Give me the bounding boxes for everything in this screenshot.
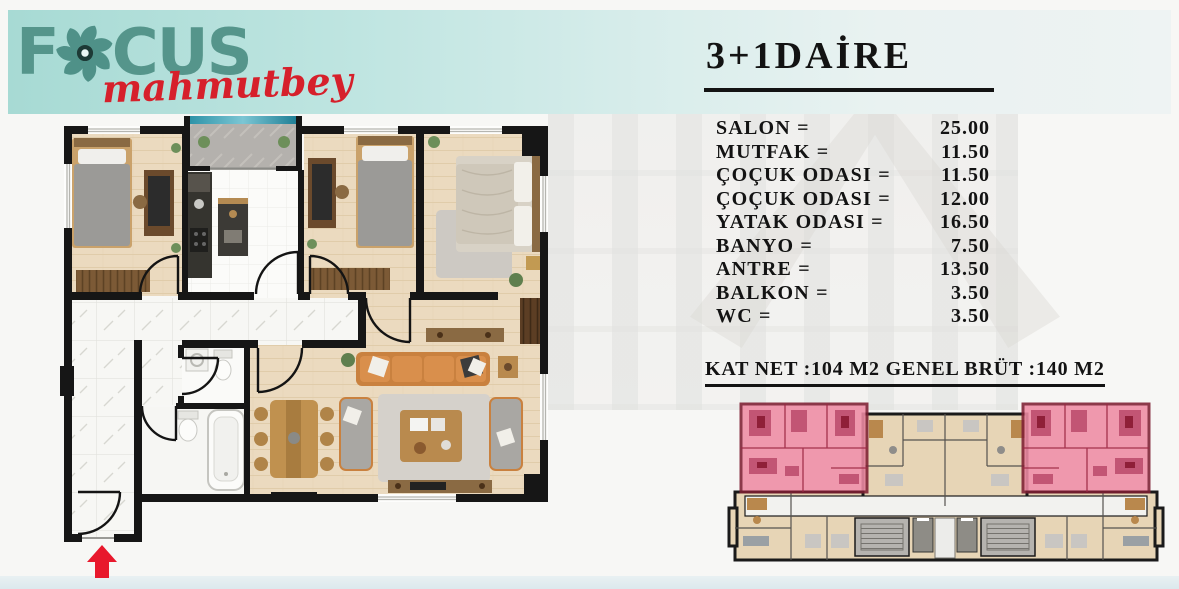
- room-area-value: 16.50: [940, 211, 990, 235]
- room-row: BANYO =7.50: [716, 235, 990, 259]
- logo-text-mahmutbey: mahmutbey: [101, 58, 353, 112]
- apartment-floor-plan: [58, 112, 578, 578]
- title-underline: [704, 88, 994, 92]
- room-row: WC =3.50: [716, 305, 990, 329]
- room-row: ANTRE =13.50: [716, 258, 990, 282]
- room-label: MUTFAK =: [716, 141, 829, 165]
- room-row: MUTFAK =11.50: [716, 141, 990, 165]
- focus-logo: F CUS mahmutbey: [16, 18, 376, 112]
- room-row: SALON =25.00: [716, 117, 990, 141]
- room-row: ÇOÇUK ODASI =12.00: [716, 188, 990, 212]
- room-area-value: 7.50: [951, 235, 990, 259]
- room-label: ÇOÇUK ODASI =: [716, 164, 891, 188]
- room-area-value: 13.50: [940, 258, 990, 282]
- unit-type-title: 3+1DAİRE: [706, 34, 1006, 78]
- room-label: BANYO =: [716, 235, 813, 259]
- flyer-page: F CUS mahmutbey 3+1DAİRE SALON =25.00 MU…: [0, 0, 1179, 589]
- logo-letter-f: F: [16, 21, 58, 85]
- room-label: SALON =: [716, 117, 810, 141]
- room-label: BALKON =: [716, 282, 829, 306]
- overview-highlighted-unit-right: [1023, 404, 1149, 492]
- overview-highlighted-unit-left: [741, 404, 867, 492]
- room-label: ÇOÇUK ODASI =: [716, 188, 891, 212]
- room-row: ÇOÇUK ODASI =11.50: [716, 164, 990, 188]
- room-area-value: 3.50: [951, 282, 990, 306]
- entrance-arrow-icon: [87, 545, 117, 578]
- room-areas-list: SALON =25.00 MUTFAK =11.50 ÇOÇUK ODASI =…: [716, 117, 990, 329]
- room-area-value: 12.00: [940, 188, 990, 212]
- room-area-value: 25.00: [940, 117, 990, 141]
- room-area-value: 11.50: [941, 141, 990, 165]
- room-label: ANTRE =: [716, 258, 811, 282]
- room-area-value: 3.50: [951, 305, 990, 329]
- room-row: BALKON =3.50: [716, 282, 990, 306]
- room-row: YATAK ODASI =16.50: [716, 211, 990, 235]
- room-label: YATAK ODASI =: [716, 211, 884, 235]
- room-label: WC =: [716, 305, 772, 329]
- floor-area-summary: KAT NET :104 M2 GENEL BRÜT :140 M2: [705, 358, 1105, 387]
- building-floor-overview: [727, 396, 1168, 586]
- room-area-value: 11.50: [941, 164, 990, 188]
